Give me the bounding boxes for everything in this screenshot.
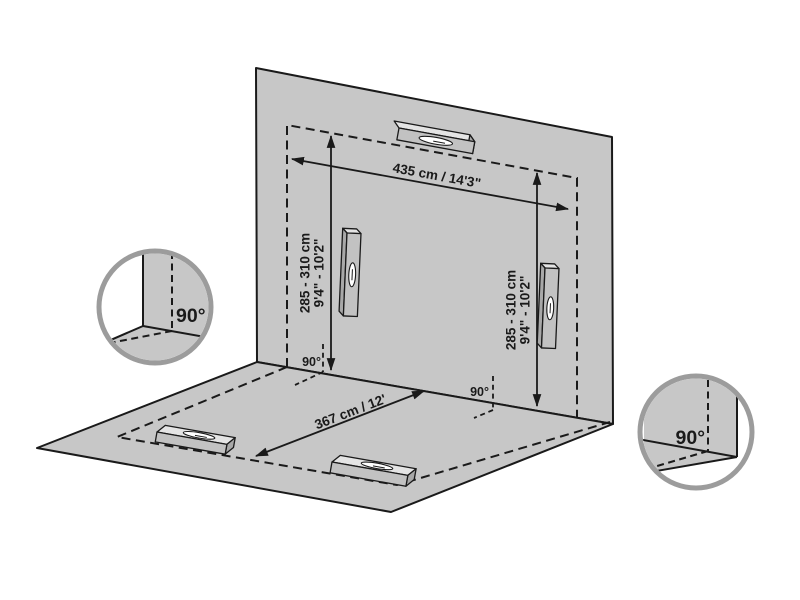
angle-label-right: 90°	[470, 385, 489, 399]
spirit-level-right-wall	[537, 263, 559, 348]
wall-height-label-right-cm: 285 - 310 cm	[504, 270, 519, 350]
angle-label-detail-right: 90°	[676, 427, 706, 449]
corner-detail-right: 90°	[640, 376, 752, 488]
room-measurement-diagram: 435 cm / 14'3" 285 - 310 cm 9'4" - 10'2"…	[0, 0, 800, 600]
wall-height-label-right-ft: 9'4" - 10'2"	[518, 276, 533, 345]
diagram-canvas: 435 cm / 14'3" 285 - 310 cm 9'4" - 10'2"…	[0, 0, 800, 600]
angle-label-left: 90°	[302, 355, 321, 369]
spirit-level-left-wall	[339, 228, 361, 316]
wall-height-label-left-ft: 9'4" - 10'2"	[312, 239, 327, 308]
wall-height-label-left-cm: 285 - 310 cm	[298, 233, 313, 313]
angle-label-detail-left: 90°	[176, 305, 206, 327]
